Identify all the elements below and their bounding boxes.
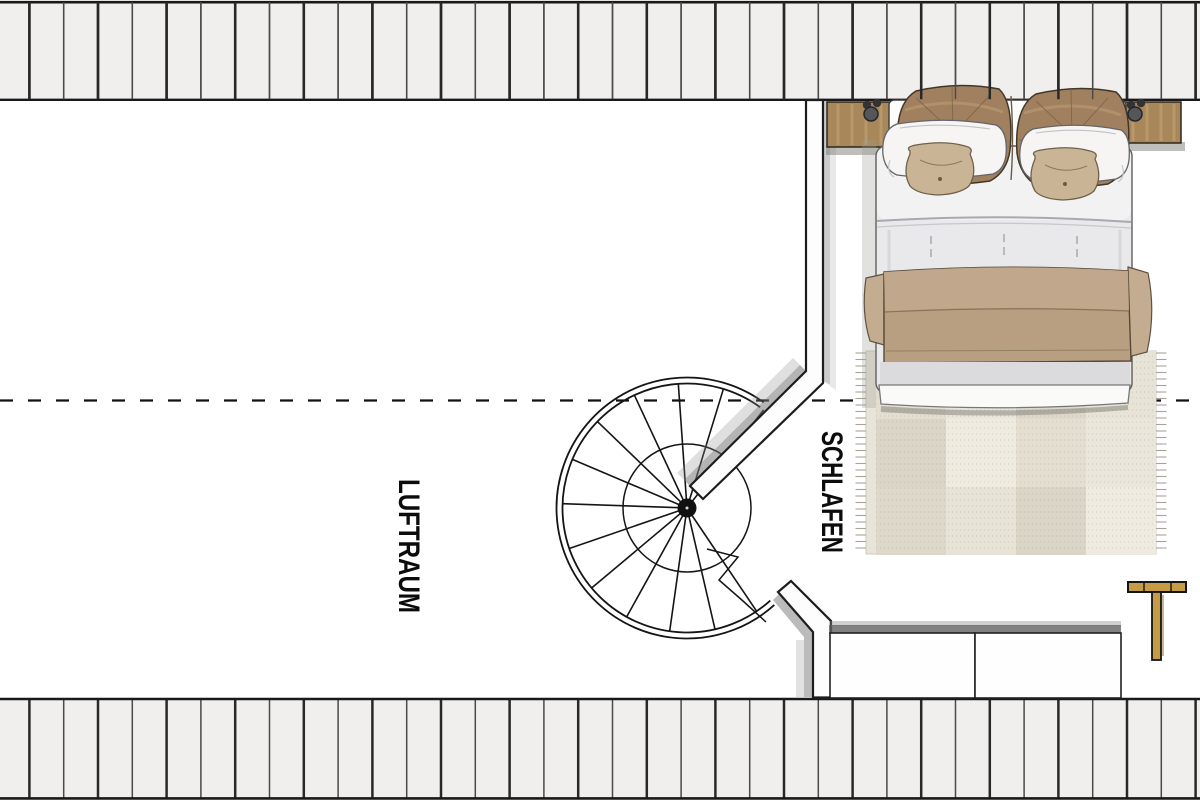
floor-plan-canvas: SCHLAFEN LUFTRAUM xyxy=(0,0,1200,800)
stair-pole-dot xyxy=(686,507,689,510)
rug-patch xyxy=(946,419,1016,487)
cushion-tan-right xyxy=(1031,148,1099,200)
rug-patch xyxy=(876,487,946,555)
nightstand-right xyxy=(1121,99,1185,151)
blanket xyxy=(864,267,1152,363)
cabinet-left xyxy=(830,633,975,698)
cabinet-right xyxy=(975,633,1121,698)
wall-shadow xyxy=(796,640,804,697)
rug-patch xyxy=(1086,419,1156,487)
bed-side-shadow xyxy=(862,140,876,408)
blanket-upper-band xyxy=(884,267,1129,311)
rug-patch xyxy=(1016,419,1086,487)
blanket-flap-right xyxy=(1128,267,1152,357)
floor-plan-svg: SCHLAFEN LUFTRAUM xyxy=(0,0,1200,800)
bottom-band-fill xyxy=(0,699,1200,799)
rug-patch xyxy=(1016,487,1086,555)
top-band-fill xyxy=(0,2,1200,100)
rug-patch xyxy=(876,419,946,487)
cushion-tan-left xyxy=(906,143,974,195)
bottom-wall-planks xyxy=(0,699,1200,799)
bed-foot-sheet xyxy=(879,385,1130,408)
double-bed xyxy=(862,85,1152,415)
rug-patch xyxy=(1086,487,1156,555)
room-label-luftraum: LUFTRAUM xyxy=(392,479,425,613)
top-wall-planks xyxy=(0,2,1200,100)
rack-stem xyxy=(1152,592,1161,660)
rack-bar xyxy=(1128,582,1186,592)
bedroom-cabinets xyxy=(829,621,1121,698)
rug-patch xyxy=(946,487,1016,555)
room-label-schlafen: SCHLAFEN xyxy=(815,431,848,553)
bed-foot-band xyxy=(880,362,1130,388)
